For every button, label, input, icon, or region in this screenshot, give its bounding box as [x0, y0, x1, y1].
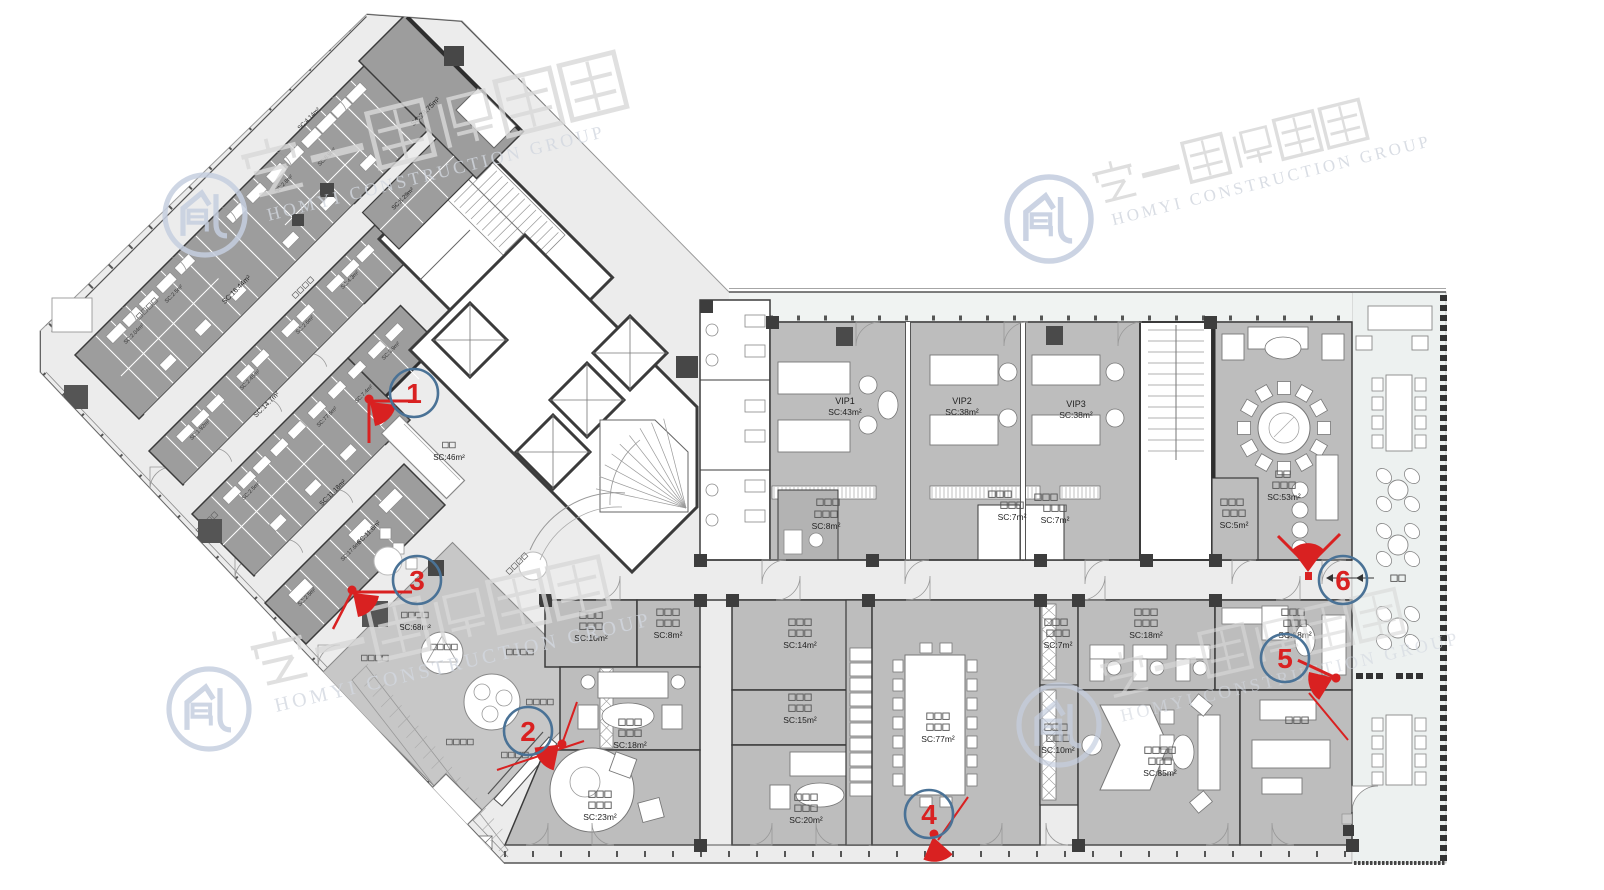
- svg-text:VIP3: VIP3: [1066, 399, 1086, 409]
- svg-text:5: 5: [1277, 643, 1293, 674]
- svg-text:SC:7m²: SC:7m²: [998, 512, 1027, 522]
- svg-text:SC:10m²: SC:10m²: [1041, 745, 1075, 755]
- svg-text:SC:85m²: SC:85m²: [1143, 768, 1177, 778]
- svg-text:SC:38m²: SC:38m²: [945, 407, 979, 417]
- svg-text:1: 1: [406, 378, 422, 409]
- svg-text:SC:77m²: SC:77m²: [921, 734, 955, 744]
- svg-text:4: 4: [921, 799, 937, 830]
- svg-text:SC:53m²: SC:53m²: [1267, 492, 1301, 502]
- svg-text:SC:7m²: SC:7m²: [1041, 515, 1070, 525]
- svg-text:VIP2: VIP2: [952, 396, 972, 406]
- svg-text:SC:14m²: SC:14m²: [783, 640, 817, 650]
- svg-text:SC:43m²: SC:43m²: [828, 407, 862, 417]
- svg-text:SC:7m²: SC:7m²: [1044, 640, 1073, 650]
- svg-text:3: 3: [409, 565, 425, 596]
- svg-text:SC:18m²: SC:18m²: [613, 740, 647, 750]
- svg-text:VIP1: VIP1: [835, 396, 855, 406]
- svg-text:SC:23m²: SC:23m²: [583, 812, 617, 822]
- svg-text:6: 6: [1335, 565, 1351, 596]
- svg-text:SC:8m²: SC:8m²: [812, 521, 841, 531]
- svg-text:SC:5m²: SC:5m²: [1220, 520, 1249, 530]
- svg-text:2: 2: [520, 716, 536, 747]
- svg-text:SC:18m²: SC:18m²: [1129, 630, 1163, 640]
- svg-text:SC:38m²: SC:38m²: [1059, 410, 1093, 420]
- svg-text:SC:15m²: SC:15m²: [783, 715, 817, 725]
- svg-text:SC:8m²: SC:8m²: [654, 630, 683, 640]
- svg-text:SC:20m²: SC:20m²: [789, 815, 823, 825]
- svg-text:SC:46m²: SC:46m²: [433, 453, 465, 462]
